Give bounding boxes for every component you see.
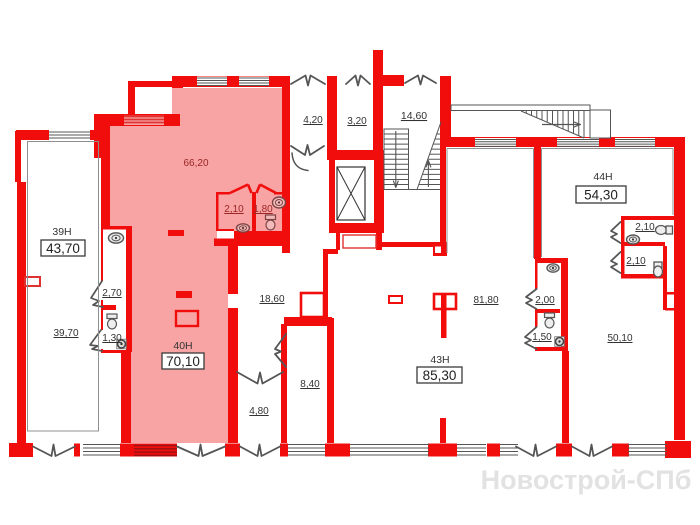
svg-text:66,20: 66,20 (183, 158, 208, 169)
svg-text:14,60: 14,60 (401, 110, 427, 122)
svg-text:1,80: 1,80 (253, 204, 273, 215)
svg-text:3,20: 3,20 (347, 116, 367, 127)
svg-text:2,10: 2,10 (635, 222, 655, 233)
svg-text:81,80: 81,80 (473, 295, 498, 306)
svg-text:2,10: 2,10 (626, 256, 646, 267)
svg-text:44Н: 44Н (593, 171, 612, 183)
svg-text:4,20: 4,20 (303, 115, 323, 126)
svg-text:Новострой-СПб: Новострой-СПб (481, 465, 692, 495)
svg-text:2,70: 2,70 (102, 288, 122, 299)
svg-text:70,10: 70,10 (166, 354, 200, 369)
svg-text:43,70: 43,70 (46, 241, 80, 256)
svg-text:2,00: 2,00 (535, 295, 555, 306)
svg-text:50,10: 50,10 (607, 333, 632, 344)
svg-text:40Н: 40Н (173, 340, 192, 352)
svg-text:43Н: 43Н (430, 354, 449, 366)
svg-text:18,60: 18,60 (259, 294, 284, 305)
svg-text:54,30: 54,30 (584, 187, 618, 202)
svg-text:8,40: 8,40 (300, 379, 320, 390)
svg-text:1,50: 1,50 (532, 332, 552, 343)
svg-text:1,30: 1,30 (102, 333, 122, 344)
svg-text:39Н: 39Н (52, 226, 71, 238)
svg-text:39,70: 39,70 (53, 328, 78, 339)
svg-text:4,80: 4,80 (249, 406, 269, 417)
svg-text:85,30: 85,30 (423, 368, 457, 383)
svg-text:2,10: 2,10 (224, 204, 244, 215)
